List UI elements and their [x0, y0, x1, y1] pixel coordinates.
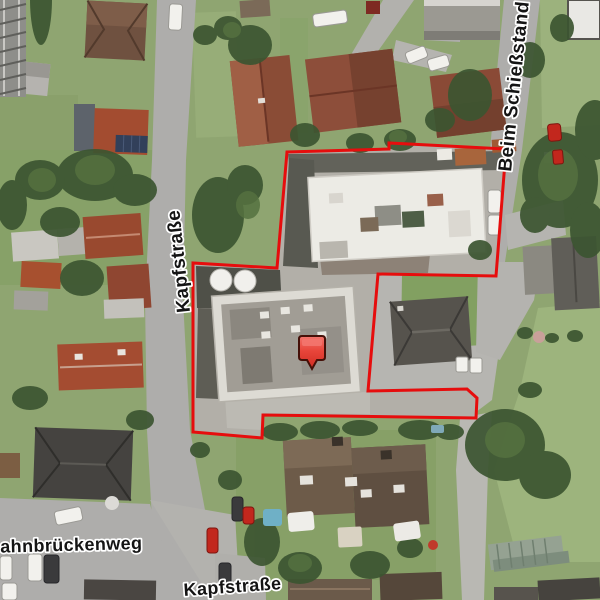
marker-highlight	[302, 339, 322, 346]
tent-beige	[337, 526, 362, 547]
silo	[234, 270, 256, 292]
railway	[0, 0, 26, 97]
house-red-roof	[305, 49, 401, 133]
label-bahnbrueckenweg: Bahnbrückenweg	[0, 533, 143, 557]
dumpster-red	[366, 1, 380, 14]
silo	[210, 269, 232, 291]
house-red-roof	[230, 55, 299, 147]
building-construction-white	[308, 169, 486, 262]
house-long-red	[57, 342, 144, 391]
house-solar-roof	[93, 108, 149, 155]
tent-white	[393, 520, 421, 541]
house-dark-roof	[390, 296, 472, 365]
round-object-white	[105, 496, 119, 510]
building-warehouse	[424, 0, 500, 40]
aerial-map[interactable]: Kapfstraße Beim Schießstand Bahnbrückenw…	[0, 0, 600, 600]
map-canvas[interactable]: Kapfstraße Beim Schießstand Bahnbrückenw…	[0, 0, 600, 600]
building-flat-roof	[212, 286, 361, 402]
lawn	[0, 95, 78, 155]
house-dark-large	[33, 427, 133, 500]
umbrella-red	[428, 540, 438, 550]
building-container	[74, 104, 95, 151]
building	[239, 0, 270, 18]
garage	[0, 453, 20, 478]
tent-white	[287, 511, 315, 532]
shed-orange	[455, 147, 487, 166]
house-brown-roof	[85, 1, 148, 61]
pool	[263, 509, 282, 526]
container-white	[437, 149, 453, 161]
car-blue	[431, 425, 444, 433]
blossom-bush	[533, 331, 545, 343]
